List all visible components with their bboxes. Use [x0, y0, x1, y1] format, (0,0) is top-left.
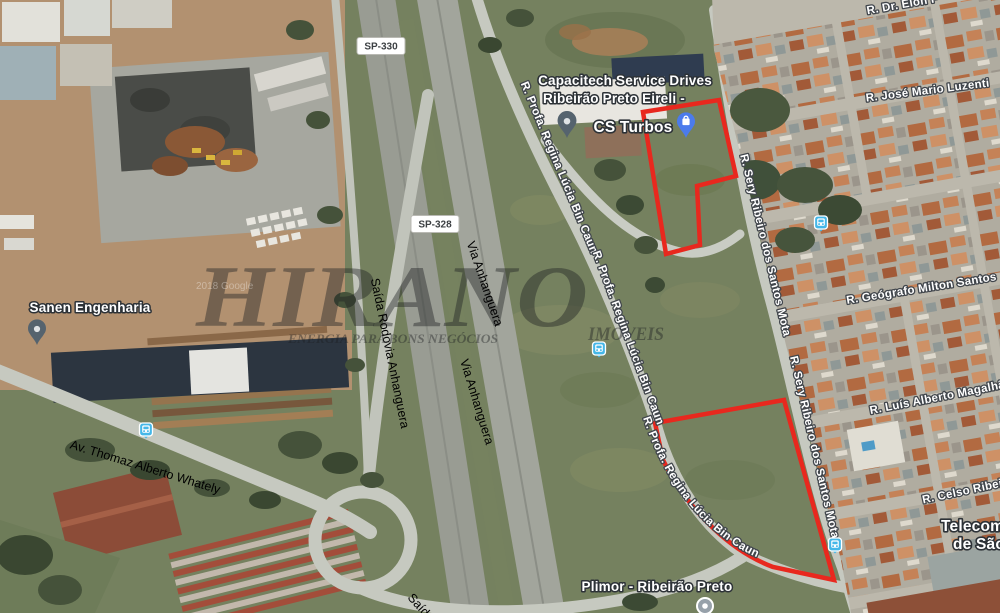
imagery-attribution: 2018 Google: [196, 281, 254, 292]
road-shield-sp330-label: SP-330: [364, 42, 398, 53]
plimor-pin-icon[interactable]: [697, 598, 713, 613]
road-shield-sp330: SP-330: [357, 38, 405, 55]
road-shield-sp328-label: SP-328: [418, 220, 452, 231]
road-shield-sp328: SP-328: [411, 216, 459, 233]
place-label-telecom-line2[interactable]: de São: [953, 536, 1000, 553]
satellite-map[interactable]: HIRANO IMOVEIS ENERGIA PARA BONS NEGÓCIO…: [0, 0, 1000, 613]
transit-stop-icon[interactable]: [140, 423, 153, 439]
transit-stop-icon[interactable]: [829, 538, 842, 554]
transit-stop-icon[interactable]: [593, 342, 606, 358]
place-label-sanen[interactable]: Sanen Engenharia: [30, 300, 151, 315]
place-label-cs-turbos[interactable]: CS Turbos: [593, 119, 672, 136]
place-label-telecom-line1[interactable]: Telecomu: [941, 518, 1000, 535]
map-canvas[interactable]: HIRANO IMOVEIS ENERGIA PARA BONS NEGÓCIO…: [0, 0, 1000, 613]
place-label-capacitech-line1[interactable]: Capacitech Service Drives: [538, 73, 712, 88]
place-label-capacitech-line2[interactable]: Ribeirão Preto Eireli -: [543, 91, 685, 106]
place-label-plimor[interactable]: Plimor - Ribeirão Preto: [582, 579, 733, 594]
transit-stop-icon[interactable]: [815, 216, 828, 232]
